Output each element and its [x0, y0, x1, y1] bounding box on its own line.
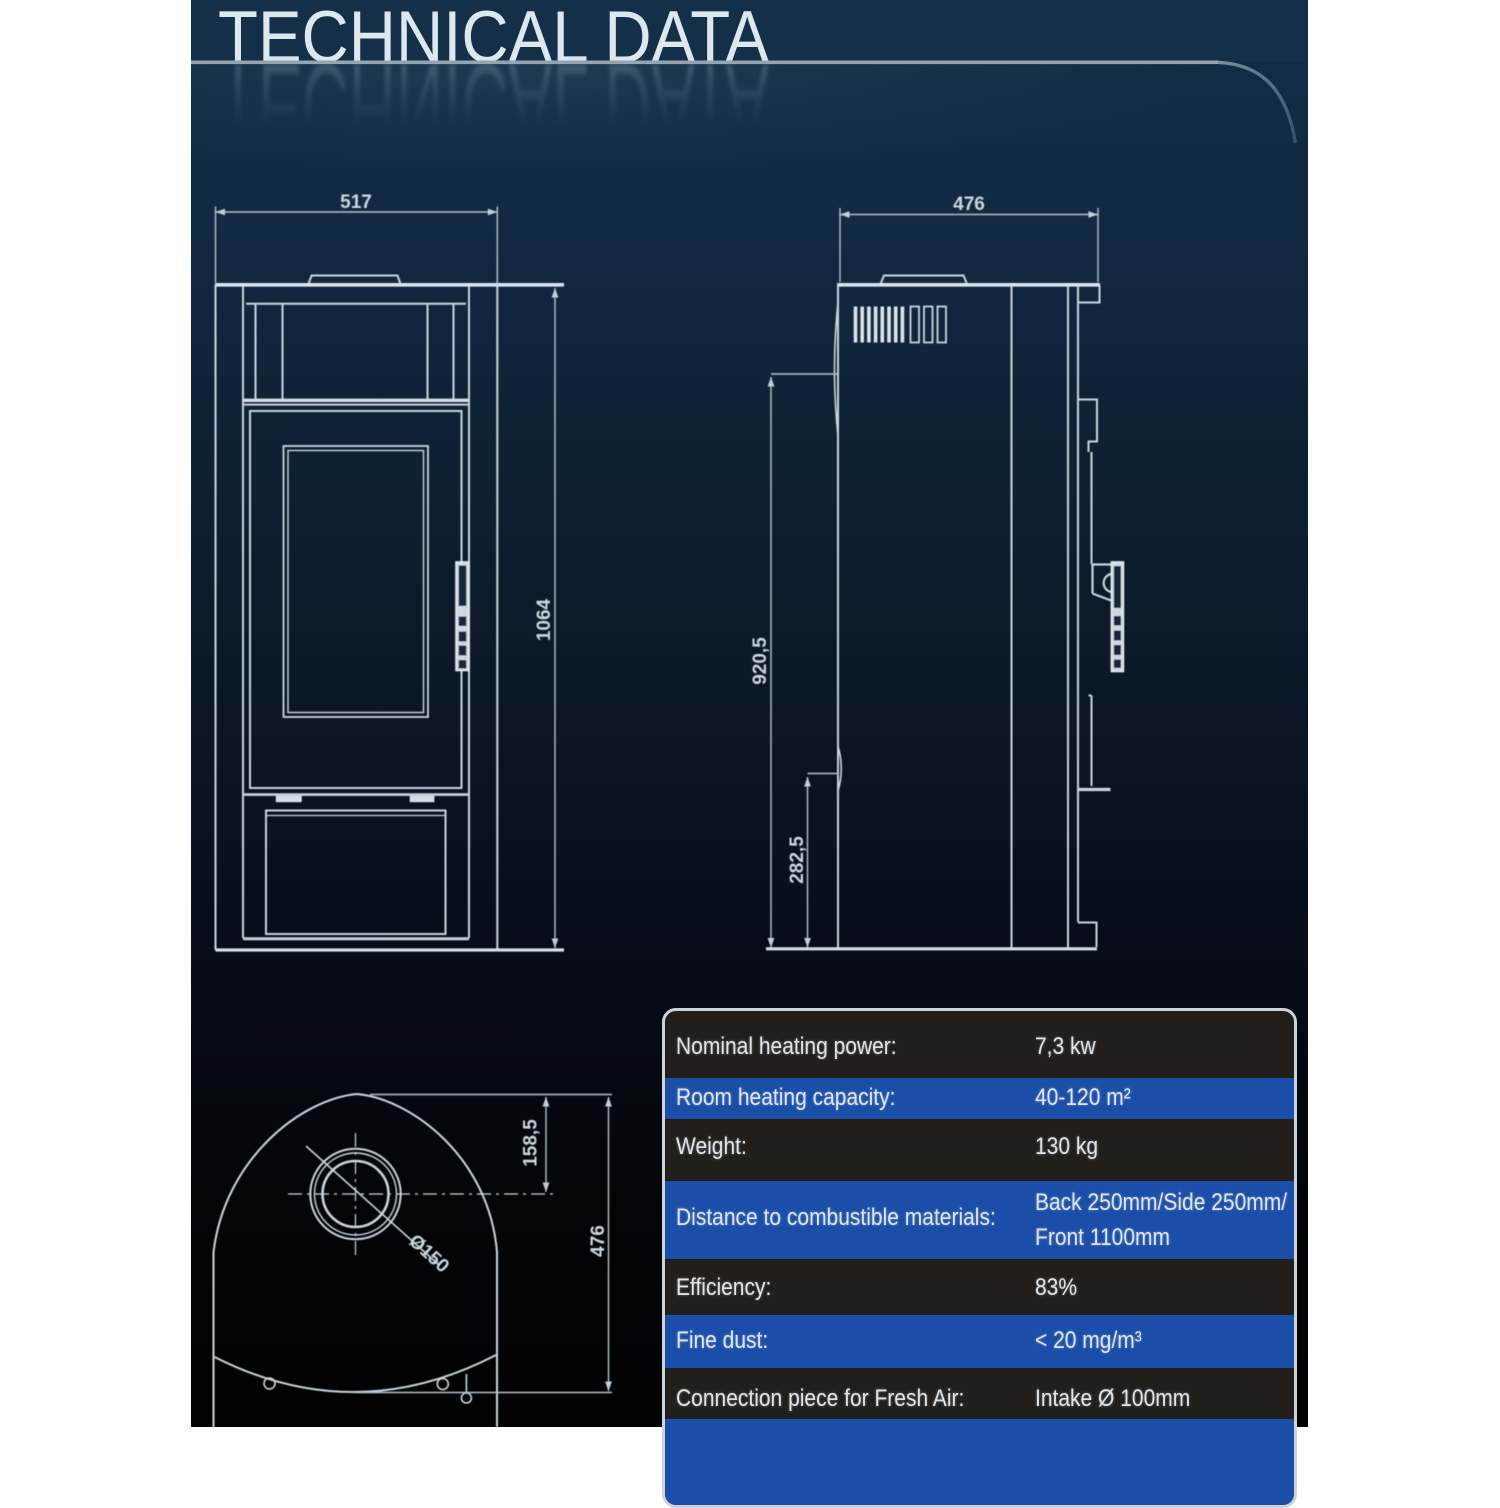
- svg-text:476: 476: [588, 1225, 609, 1257]
- svg-text:282,5: 282,5: [787, 836, 808, 884]
- svg-text:1064: 1064: [534, 598, 555, 641]
- svg-text:158,5: 158,5: [521, 1119, 542, 1167]
- svg-text:920,5: 920,5: [750, 637, 771, 685]
- svg-text:TECHNICAL DATA: TECHNICAL DATA: [218, 36, 769, 178]
- svg-text:517: 517: [340, 192, 372, 213]
- svg-text:476: 476: [953, 194, 985, 215]
- svg-text:Ø150: Ø150: [404, 1231, 453, 1278]
